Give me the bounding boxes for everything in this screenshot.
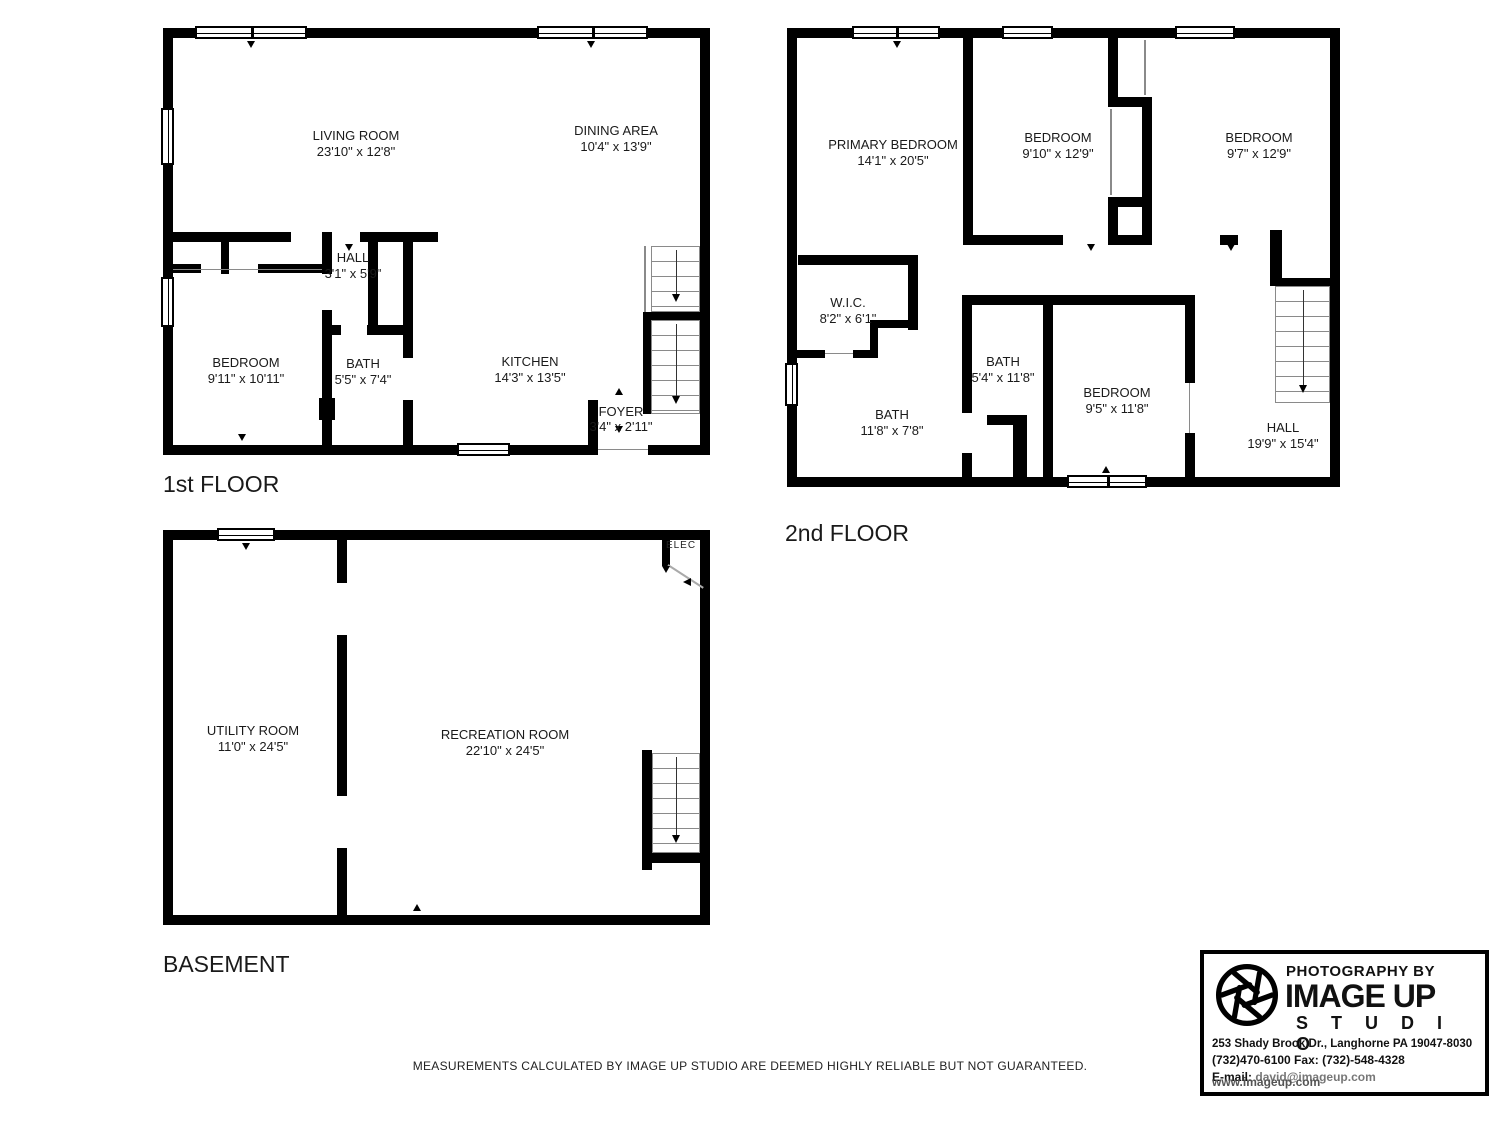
logo-address: 253 Shady Brook Dr., Langhorne PA 19047-… xyxy=(1212,1038,1472,1052)
room-label-bath-2: BATH 5'4" x 11'8" xyxy=(971,354,1034,386)
wall xyxy=(1142,207,1152,245)
door-line xyxy=(1189,383,1190,433)
room-label-kitchen: KITCHEN 14'3" x 13'5" xyxy=(494,354,565,386)
first-floor-title: 1st FLOOR xyxy=(163,471,279,498)
door-line xyxy=(173,269,322,270)
wall xyxy=(1270,230,1282,283)
door-line xyxy=(644,246,646,312)
wall xyxy=(700,28,710,455)
room-label-bedroom-3: BEDROOM 9'7" x 12'9" xyxy=(1225,130,1292,162)
stair-direction-arrow xyxy=(676,250,677,300)
room-name: BATH xyxy=(860,407,923,423)
wall xyxy=(337,848,347,915)
wall xyxy=(1013,415,1027,477)
basement-title: BASEMENT xyxy=(163,951,290,978)
door-arrow xyxy=(238,434,246,441)
wall xyxy=(963,38,973,243)
wall xyxy=(322,325,413,335)
stair-direction-arrow xyxy=(676,324,677,402)
room-name: HALL xyxy=(325,250,382,266)
wall xyxy=(1043,295,1195,305)
measurement-disclaimer: MEASUREMENTS CALCULATED BY IMAGE UP STUD… xyxy=(0,1059,1500,1073)
wall xyxy=(319,398,335,420)
window xyxy=(537,26,648,39)
wall xyxy=(1108,38,1118,97)
room-label-bath: BATH 5'5" x 7'4" xyxy=(335,356,392,388)
room-dimensions: 9'10" x 12'9" xyxy=(1022,146,1093,162)
wall xyxy=(173,232,291,242)
door-arrow xyxy=(247,41,255,48)
door-arrow xyxy=(683,578,691,586)
window-mullion xyxy=(1107,477,1110,486)
wall xyxy=(1330,28,1340,487)
stair-direction-arrow xyxy=(1303,290,1304,391)
room-dimensions: 9'7" x 12'9" xyxy=(1225,146,1292,162)
door-opening xyxy=(825,350,853,358)
door-arrow xyxy=(413,904,421,911)
aperture-icon xyxy=(1214,962,1280,1028)
door-arrow xyxy=(1102,466,1110,473)
logo-website: www.imageup.com xyxy=(1212,1075,1320,1089)
room-label-bedroom: BEDROOM 9'11" x 10'11" xyxy=(208,355,285,387)
wall xyxy=(962,295,1055,305)
room-name: BATH xyxy=(335,356,392,372)
door-arrow xyxy=(587,41,595,48)
room-dimensions: 11'8" x 7'8" xyxy=(860,423,923,439)
window xyxy=(1067,475,1147,488)
room-label-bedroom-2: BEDROOM 9'10" x 12'9" xyxy=(1022,130,1093,162)
room-label-primary-bedroom: PRIMARY BEDROOM 14'1" x 20'5" xyxy=(828,137,958,169)
room-name: KITCHEN xyxy=(494,354,565,370)
room-label-bedroom-4: BEDROOM 9'5" x 11'8" xyxy=(1083,385,1150,417)
room-name: UTILITY ROOM xyxy=(207,723,299,739)
wall xyxy=(322,335,332,445)
wall xyxy=(642,750,652,870)
room-name: PRIMARY BEDROOM xyxy=(828,137,958,153)
door-line xyxy=(1144,40,1146,95)
room-name: DINING AREA xyxy=(574,123,658,139)
staircase xyxy=(651,246,700,312)
room-dimensions: 8'2" x 6'1" xyxy=(820,311,877,327)
door-line xyxy=(598,449,648,450)
wall xyxy=(908,255,918,330)
door-line xyxy=(825,353,853,354)
room-label-recreation-room: RECREATION ROOM 22'10" x 24'5" xyxy=(441,727,569,759)
room-name: BEDROOM xyxy=(1083,385,1150,401)
first-floor-plan: LIVING ROOM 23'10" x 12'8" DINING AREA 1… xyxy=(163,28,710,455)
room-dimensions: 22'10" x 24'5" xyxy=(441,743,569,759)
window xyxy=(161,277,174,327)
window xyxy=(785,363,798,406)
room-label-utility-room: UTILITY ROOM 11'0" x 24'5" xyxy=(207,723,299,755)
door-arrow xyxy=(893,41,901,48)
window-mullion xyxy=(896,28,899,37)
room-dimensions: 10'4" x 13'9" xyxy=(574,139,658,155)
room-name: FOYER xyxy=(589,404,652,419)
door-opening xyxy=(403,358,413,400)
room-name: BEDROOM xyxy=(1022,130,1093,146)
window xyxy=(457,443,510,456)
room-label-bath-1: BATH 11'8" x 7'8" xyxy=(860,407,923,439)
room-label-foyer: FOYER 3'4" x 2'11" xyxy=(589,404,652,434)
room-label-hall: HALL 3'1" x 5'9" xyxy=(325,250,382,282)
door-arrow xyxy=(662,566,670,573)
room-name: RECREATION ROOM xyxy=(441,727,569,743)
staircase xyxy=(651,320,700,414)
window xyxy=(161,108,174,165)
window-mullion xyxy=(592,28,595,37)
wall xyxy=(1108,197,1152,207)
wall xyxy=(1043,295,1053,477)
window xyxy=(1175,26,1235,39)
wall xyxy=(652,853,700,863)
wall xyxy=(337,537,347,583)
room-name: BEDROOM xyxy=(1225,130,1292,146)
staircase xyxy=(652,753,700,853)
room-dimensions: 23'10" x 12'8" xyxy=(313,144,400,160)
wall xyxy=(221,232,229,274)
window-mullion xyxy=(251,28,254,37)
wall xyxy=(787,28,797,487)
room-dimensions: 9'11" x 10'11" xyxy=(208,371,285,387)
wall xyxy=(700,530,710,925)
elec-label: ELEC xyxy=(666,540,696,551)
wall xyxy=(963,235,1063,245)
door-line xyxy=(1110,109,1112,195)
room-name: BEDROOM xyxy=(208,355,285,371)
floor-plan-sheet: LIVING ROOM 23'10" x 12'8" DINING AREA 1… xyxy=(0,0,1500,1125)
wall xyxy=(643,312,700,320)
wall xyxy=(1270,278,1330,286)
door-opening xyxy=(1185,383,1195,433)
stair-direction-arrow xyxy=(676,757,677,841)
window xyxy=(1002,26,1053,39)
room-name: W.I.C. xyxy=(820,295,877,311)
wall xyxy=(1142,97,1152,207)
door-opening xyxy=(341,325,367,335)
room-dimensions: 19'9" x 15'4" xyxy=(1247,436,1318,452)
door-arrow xyxy=(1087,244,1095,251)
room-dimensions: 14'1" x 20'5" xyxy=(828,153,958,169)
window xyxy=(195,26,307,39)
wall xyxy=(163,530,173,925)
door-arrow xyxy=(242,543,250,550)
basement-plan: ELEC UTILITY ROOM 11'0" x 24'5" RECREATI… xyxy=(163,530,710,925)
room-dimensions: 14'3" x 13'5" xyxy=(494,370,565,386)
door-arrow xyxy=(615,388,623,395)
room-label-dining-area: DINING AREA 10'4" x 13'9" xyxy=(574,123,658,155)
room-dimensions: 3'4" x 2'11" xyxy=(589,419,652,434)
room-label-hall-2: HALL 19'9" x 15'4" xyxy=(1247,420,1318,452)
wall xyxy=(403,232,413,445)
room-label-living-room: LIVING ROOM 23'10" x 12'8" xyxy=(313,128,400,160)
wall xyxy=(337,635,347,796)
room-dimensions: 3'1" x 5'9" xyxy=(325,266,382,282)
second-floor-plan: PRIMARY BEDROOM 14'1" x 20'5" BEDROOM 9'… xyxy=(787,28,1340,487)
wall xyxy=(1108,207,1118,245)
wall xyxy=(798,255,918,265)
wall xyxy=(163,915,710,925)
room-name: LIVING ROOM xyxy=(313,128,400,144)
door-opening xyxy=(962,413,972,453)
staircase xyxy=(1275,286,1330,403)
door-opening xyxy=(598,445,648,455)
second-floor-title: 2nd FLOOR xyxy=(785,520,909,547)
room-dimensions: 9'5" x 11'8" xyxy=(1083,401,1150,417)
room-name: BATH xyxy=(971,354,1034,370)
wall xyxy=(787,477,1340,487)
room-name: HALL xyxy=(1247,420,1318,436)
window xyxy=(852,26,940,39)
logo-brand: IMAGE UP xyxy=(1285,978,1435,1015)
wall xyxy=(163,28,173,455)
room-dimensions: 5'4" x 11'8" xyxy=(971,370,1034,386)
wall xyxy=(360,232,438,242)
room-label-wic: W.I.C. 8'2" x 6'1" xyxy=(820,295,877,327)
photographer-logo-box: PHOTOGRAPHY BY IMAGE UP S T U D I O 253 … xyxy=(1200,950,1489,1096)
window xyxy=(217,528,275,541)
wall xyxy=(643,320,651,414)
room-dimensions: 5'5" x 7'4" xyxy=(335,372,392,388)
door-arrow xyxy=(1227,244,1235,251)
room-dimensions: 11'0" x 24'5" xyxy=(207,739,299,755)
